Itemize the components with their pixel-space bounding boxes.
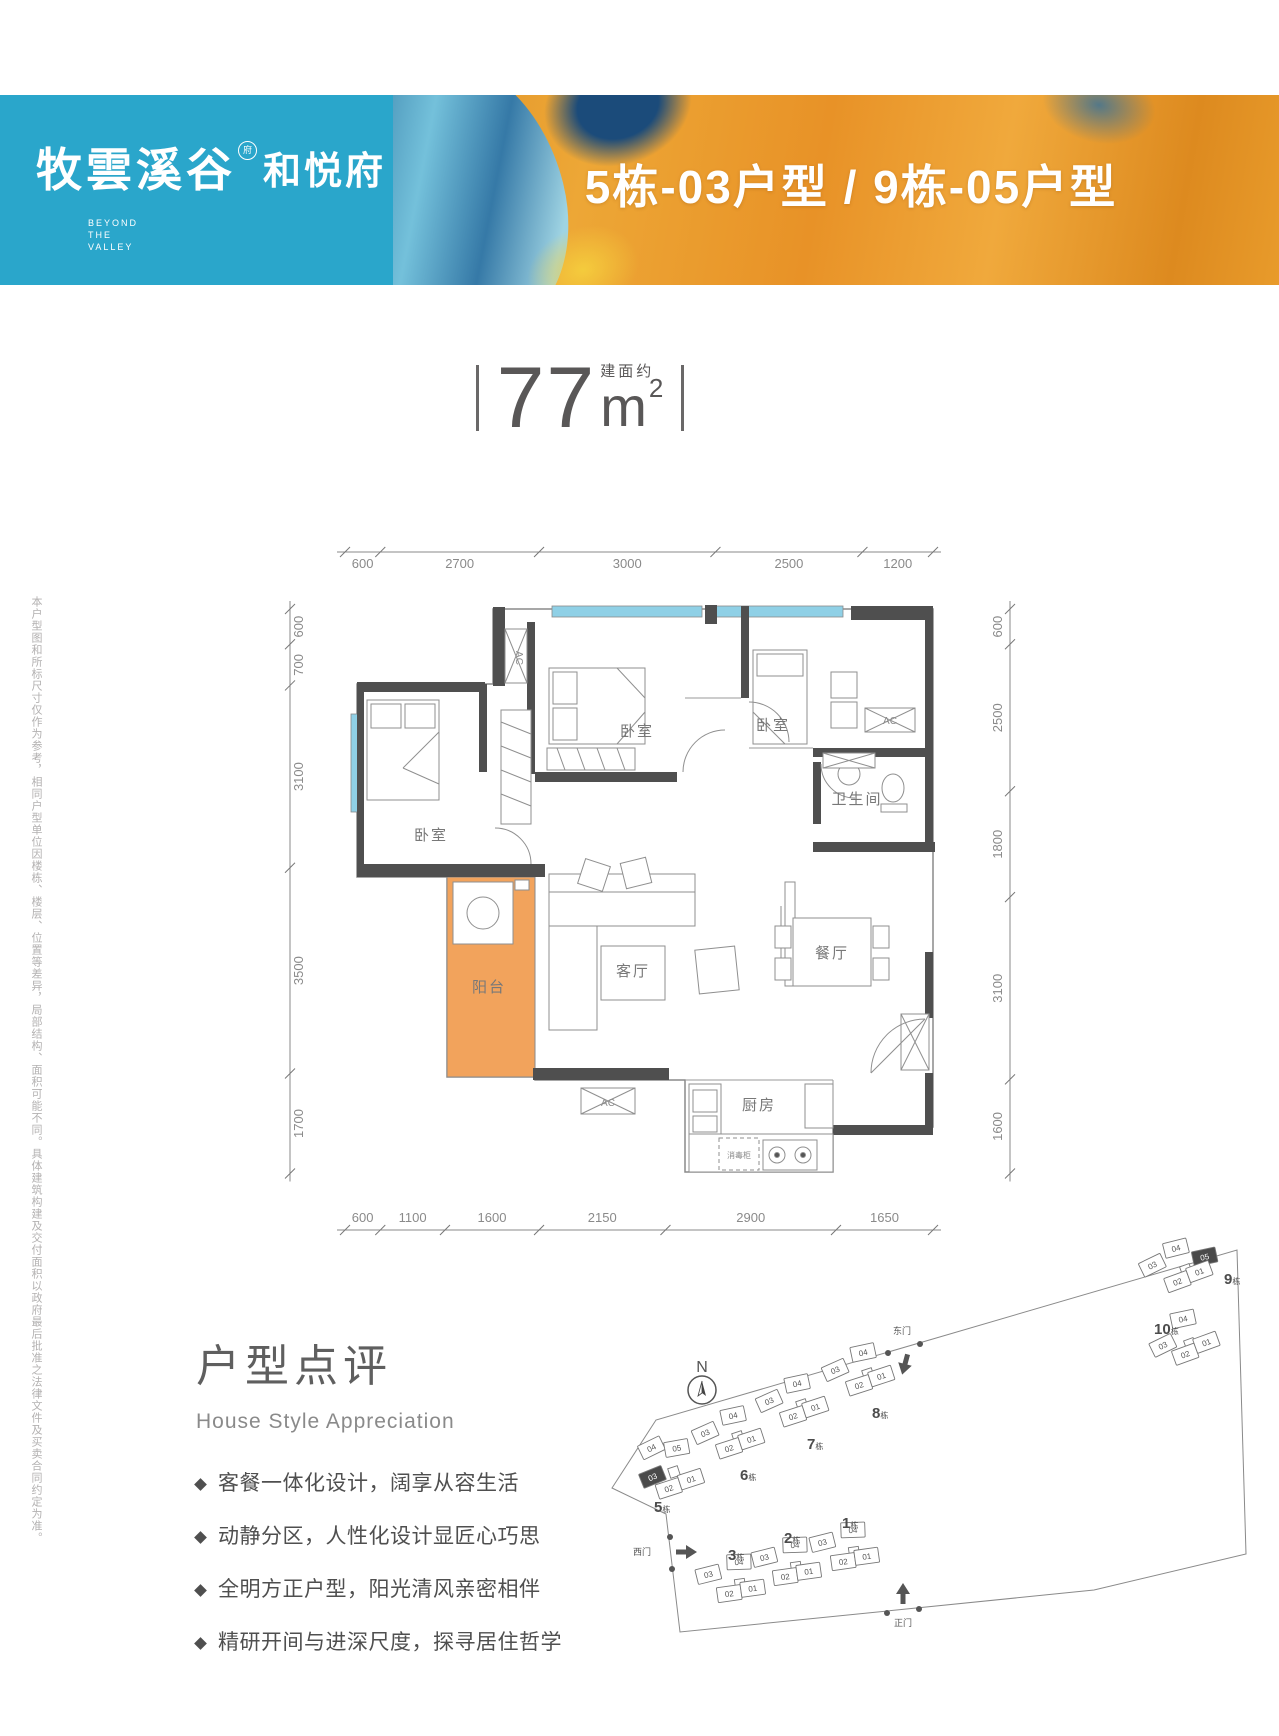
unit-box: 01 — [740, 1579, 766, 1597]
logo-en-text: BEYOND THE VALLEY — [88, 217, 138, 253]
gate-arrow-icon — [895, 1353, 914, 1377]
gate-dot — [884, 1610, 890, 1616]
building-label: 8栋 — [872, 1405, 888, 1422]
flyer-page: 牧雲溪谷 府 和悦府 BEYOND THE VALLEY 5栋-03户型 / 9… — [0, 0, 1279, 1736]
gate-label: 西门 — [633, 1546, 651, 1557]
unit-box: 02 — [830, 1552, 856, 1570]
room-label: 餐厅 — [815, 945, 849, 962]
dim-label: 2500 — [774, 556, 803, 571]
brush-stroke-sky — [1032, 95, 1166, 157]
review-title: 户型点评 — [196, 1330, 596, 1394]
room-label: 卫生间 — [831, 791, 882, 808]
dim-label: 2500 — [990, 703, 1005, 732]
review-bullet-text: 精研开间与进深尺度，探寻居住哲学 — [218, 1627, 562, 1659]
unit-box: 03 — [755, 1389, 783, 1412]
dim-label: 3000 — [613, 556, 642, 571]
unit-box: 05 — [664, 1439, 690, 1458]
dim-label: 1600 — [478, 1210, 507, 1225]
compass-n-label: N — [696, 1359, 708, 1376]
review-bullet: 全明方正户型，阳光清风亲密相伴 — [196, 1574, 596, 1606]
dim-label: 3500 — [291, 956, 306, 985]
unit-box: 02 — [779, 1405, 806, 1427]
gate-label: 东门 — [893, 1325, 911, 1336]
unit-box: 03 — [691, 1421, 719, 1444]
unit-label: 01 — [804, 1567, 815, 1577]
stove-icon — [763, 1140, 817, 1170]
unit-box: 01 — [677, 1468, 704, 1490]
unit-box: 02 — [715, 1437, 742, 1459]
dim-label: 600 — [291, 616, 306, 638]
unit-label: 02 — [724, 1589, 735, 1599]
unit-box: 01 — [854, 1547, 880, 1565]
dim-label: 1100 — [399, 1210, 427, 1225]
unit-box: 03 — [695, 1564, 722, 1584]
area-exponent: 2 — [649, 375, 663, 401]
unit-label: 01 — [748, 1584, 759, 1594]
gate-arrow-icon — [676, 1545, 697, 1559]
wardrobe-icon — [501, 710, 531, 824]
toilet-icon — [881, 774, 907, 812]
diamond-bullet-icon — [194, 1584, 207, 1597]
diamond-bullet-icon — [194, 1478, 207, 1491]
site-buildings: 04050302015栋030402016栋030402017栋03040201… — [629, 1227, 1240, 1605]
review-bullet-text: 动静分区，人性化设计显匠心巧思 — [218, 1521, 541, 1553]
review-bullet: 动静分区，人性化设计显匠心巧思 — [196, 1521, 596, 1553]
review-bullet: 精研开间与进深尺度，探寻居住哲学 — [196, 1627, 596, 1659]
unit-box: 03 — [809, 1532, 836, 1552]
header-band: 牧雲溪谷 府 和悦府 BEYOND THE VALLEY 5栋-03户型 / 9… — [0, 95, 1279, 285]
building-label: 2栋 — [784, 1530, 800, 1547]
room-label: 卧室 — [620, 723, 654, 740]
room-label: 厨房 — [742, 1097, 776, 1114]
unit-box: 02 — [772, 1567, 798, 1585]
ac-label: AC — [883, 716, 897, 727]
bed-icon — [367, 700, 439, 800]
room-label: 客厅 — [616, 963, 650, 980]
room-label: 卧室 — [756, 717, 790, 734]
logo-en-line: BEYOND — [88, 217, 138, 229]
logo-en-line: THE — [88, 229, 138, 241]
review-subtitle: House Style Appreciation — [196, 1410, 596, 1434]
unit-label: 02 — [838, 1557, 849, 1567]
badge-bar-left — [476, 365, 479, 431]
logo-en-line: VALLEY — [88, 241, 138, 253]
unit-label: 01 — [862, 1552, 873, 1562]
building-cluster: 03040201 — [818, 1337, 896, 1402]
sitemap: N 04050302015栋030402016栋030402017栋030402… — [592, 1222, 1264, 1700]
unit-box: 03 — [1138, 1253, 1166, 1277]
diamond-bullet-icon — [194, 1637, 207, 1650]
area-unit: m — [600, 381, 647, 433]
unit-box: 04 — [1162, 1238, 1189, 1258]
dim-label: 1700 — [291, 1109, 306, 1138]
sofa-icon — [549, 857, 695, 1030]
gate-dot — [885, 1350, 891, 1356]
building-label: 6栋 — [740, 1467, 756, 1484]
brand-logo: 牧雲溪谷 府 和悦府 — [36, 147, 386, 193]
page-title: 5栋-03户型 / 9栋-05户型 — [423, 151, 1279, 217]
review-section: 户型点评 House Style Appreciation 客餐一体化设计，阔享… — [196, 1330, 596, 1680]
sterilizer-label: 消毒柜 — [727, 1150, 751, 1160]
dim-label: 1800 — [990, 830, 1005, 859]
dim-label: 1200 — [883, 556, 912, 571]
ac-label: AC — [601, 1098, 615, 1109]
unit-box: 04 — [1170, 1309, 1197, 1329]
area-badge: 77 建面约 m 2 — [440, 350, 720, 446]
logo-block: 牧雲溪谷 府 和悦府 BEYOND THE VALLEY — [0, 95, 393, 285]
building-label: 3栋 — [728, 1547, 744, 1564]
dim-label: 3100 — [990, 974, 1005, 1003]
dim-label: 600 — [352, 556, 374, 571]
unit-box: 04 — [637, 1436, 665, 1460]
room-label: 卧室 — [414, 827, 448, 844]
review-bullet-text: 客餐一体化设计，阔享从容生活 — [218, 1468, 519, 1500]
logo-cn-text: 牧雲溪谷 — [36, 147, 236, 193]
dim-label: 600 — [352, 1210, 374, 1225]
dim-label: 2700 — [445, 556, 474, 571]
unit-box: 03 — [751, 1547, 778, 1567]
gate-label: 正门 — [894, 1617, 912, 1628]
paint-background: 5栋-03户型 / 9栋-05户型 — [393, 95, 1279, 285]
unit-box: 01 — [1193, 1331, 1221, 1353]
building-cluster: 0304050201 — [1135, 1227, 1224, 1299]
dim-label: 1600 — [990, 1112, 1005, 1141]
building-label: 5栋 — [654, 1499, 670, 1516]
compass-icon: N — [688, 1359, 716, 1404]
review-bullet: 客餐一体化设计，阔享从容生活 — [196, 1468, 596, 1500]
ac-label: AC — [513, 651, 524, 665]
dim-label: 700 — [291, 654, 306, 676]
review-bullet-text: 全明方正户型，阳光清风亲密相伴 — [218, 1574, 541, 1606]
interior-lines — [685, 698, 833, 1125]
building-label: 1栋 — [842, 1515, 858, 1532]
floorplan: 6002700300025001200600110016002150290016… — [265, 522, 1045, 1262]
unit-box: 04 — [720, 1406, 747, 1426]
badge-bar-right — [681, 365, 684, 431]
wardrobe-icon — [547, 748, 635, 770]
unit-box: 02 — [845, 1374, 872, 1396]
gate-dot — [917, 1341, 923, 1347]
gate-arrow-icon — [896, 1583, 910, 1604]
diamond-bullet-icon — [194, 1531, 207, 1544]
building-cluster: 03040201 — [752, 1368, 830, 1433]
unit-label: 02 — [780, 1572, 791, 1582]
area-value: 77 — [497, 358, 597, 438]
gate-dot — [667, 1534, 673, 1540]
unit-box: 03 — [821, 1358, 849, 1381]
registered-mark-icon: 府 — [238, 141, 257, 160]
unit-box: 02 — [716, 1584, 742, 1602]
gate-dot — [669, 1566, 675, 1572]
dim-label: 600 — [990, 616, 1005, 638]
unit-box: 01 — [796, 1562, 822, 1580]
armchair-icon — [695, 946, 739, 994]
dim-label: 3100 — [291, 762, 306, 791]
disclaimer-note: 本户型图和所标尺寸仅作为参考，相同户型单位因楼栋、楼层、位置等差异，局部结构、面… — [28, 596, 44, 1606]
building-cluster: 03040201 — [688, 1400, 766, 1465]
review-list: 客餐一体化设计，阔享从容生活动静分区，人性化设计显匠心巧思全明方正户型，阳光清风… — [196, 1468, 596, 1659]
gate-dot — [916, 1606, 922, 1612]
unit-box: 04 — [850, 1343, 877, 1363]
logo-sub-text: 和悦府 — [263, 153, 386, 191]
building-label: 7栋 — [807, 1436, 823, 1453]
unit-box: 04 — [784, 1374, 811, 1394]
room-label: 阳台 — [472, 979, 506, 996]
